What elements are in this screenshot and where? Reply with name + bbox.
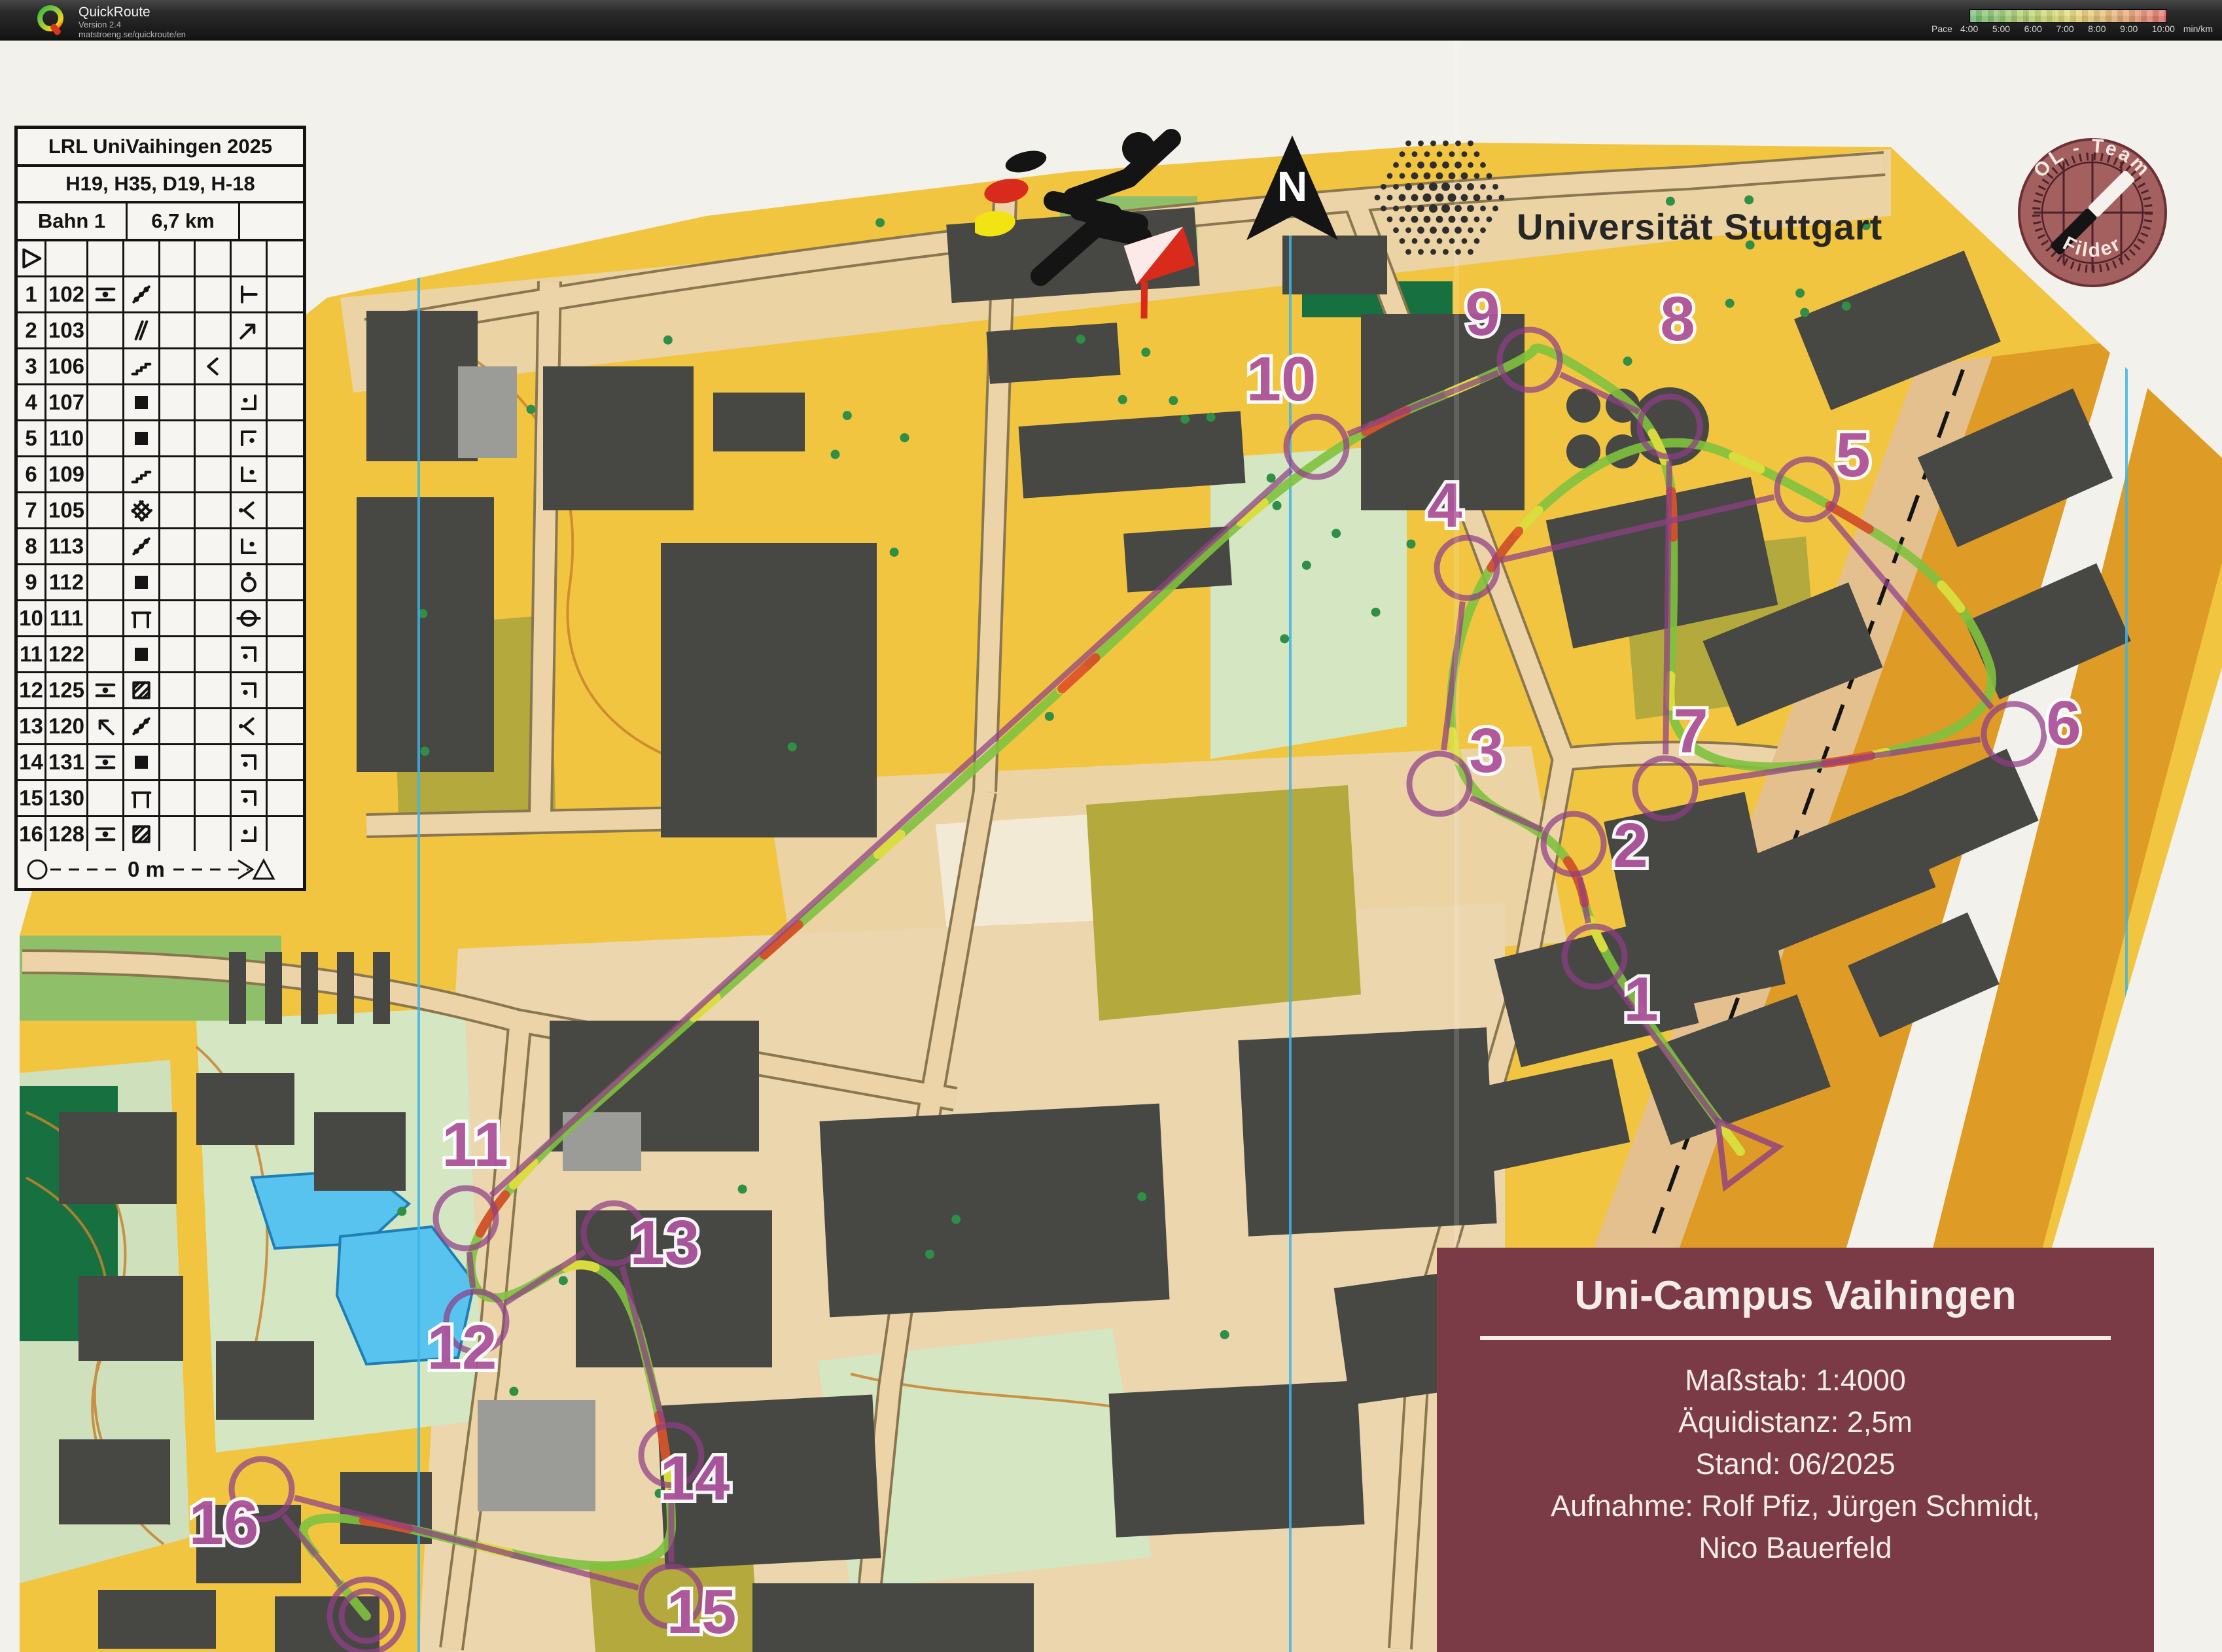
control-row: 11122 [18, 637, 303, 673]
symbol-cell [160, 673, 196, 707]
map-metadata: Maßstab: 1:4000Äquidistanz: 2,5mStand: 0… [1551, 1360, 2040, 1568]
control-row: 6109 [18, 457, 303, 493]
app-url: matstroeng.se/quickroute/en [79, 30, 186, 40]
map-control-number: 8 [1660, 284, 1695, 354]
symbol-cell [232, 421, 268, 455]
building-icon [128, 389, 154, 415]
control-number-cell: 10 [18, 601, 46, 635]
map-metadata-line: Maßstab: 1:4000 [1551, 1360, 2040, 1401]
quickroute-q-icon [34, 3, 68, 38]
map-control-number: 2 [1613, 811, 1648, 881]
symbol-cell [232, 673, 268, 707]
symbol-cell [124, 421, 160, 455]
grid-icon [128, 497, 154, 523]
symbol-cell [160, 313, 196, 347]
control-code-cell: 110 [46, 421, 88, 455]
course-length: 6,7 km [128, 203, 240, 239]
symbol-cell [196, 241, 232, 275]
control-code-cell: 120 [46, 709, 88, 743]
symbol-cell [88, 493, 124, 527]
control-code-cell: 128 [46, 817, 88, 851]
control-row: 12125 [18, 673, 303, 709]
symbol-cell [268, 385, 304, 419]
symbol-cell [88, 313, 124, 347]
symbol-cell [124, 781, 160, 815]
club-logo-compass: OL - Team Filder [2015, 135, 2170, 290]
symbol-cell [160, 781, 196, 815]
control-row: 13120 [18, 709, 303, 745]
control-code-cell: 125 [46, 673, 88, 707]
symbol-cell [232, 565, 268, 599]
symbol-cell [232, 745, 268, 779]
pace-tick-label: 4:00 [1960, 24, 1978, 34]
map-info-box: Uni-Campus Vaihingen Maßstab: 1:4000Äqui… [1437, 1248, 2154, 1652]
symbol-cell [160, 601, 196, 635]
building-icon [128, 749, 154, 775]
pace-label: Pace [1931, 24, 1952, 34]
circle-cross-icon [236, 605, 262, 631]
symbol-cell [124, 637, 160, 671]
dots-diag-icon [128, 533, 154, 559]
corner-dot-tl-icon [236, 425, 262, 451]
symbol-cell [196, 457, 232, 491]
corner-dot-br-icon [236, 389, 262, 415]
symbol-cell [232, 817, 268, 851]
quickroute-window: QuickRoute Version 2.4 matstroeng.se/qui… [0, 0, 2222, 1652]
control-number-cell: 12 [18, 673, 46, 707]
symbol-cell [196, 673, 232, 707]
finish-arrow-icon [170, 855, 281, 884]
symbol-cell [196, 385, 232, 419]
symbol-cell [124, 817, 160, 851]
symbol-cell [88, 457, 124, 491]
control-number-cell: 6 [18, 457, 46, 491]
symbol-cell [160, 493, 196, 527]
symbol-cell [232, 493, 268, 527]
corner-dot-tr-icon [236, 677, 262, 703]
map-title: Uni-Campus Vaihingen [1574, 1273, 2016, 1319]
symbol-cell [196, 529, 232, 563]
control-row: 1102 [18, 277, 303, 313]
map-control-number: 1 [1623, 964, 1658, 1034]
symbol-cell [268, 601, 304, 635]
symbol-cell [124, 241, 160, 275]
symbol-cell [160, 421, 196, 455]
symbol-cell [124, 277, 160, 311]
control-code-cell: 109 [46, 457, 88, 491]
symbol-cell [232, 709, 268, 743]
pace-gradient-bar [1969, 9, 2167, 23]
pace-tick-label: 8:00 [2088, 24, 2106, 34]
symbol-cell [88, 709, 124, 743]
map-control-number: 7 [1673, 696, 1708, 766]
symbol-cell [88, 385, 124, 419]
map-control-number: 16 [189, 1488, 259, 1558]
symbol-cell [268, 565, 304, 599]
map-control-number: 3 [1469, 716, 1504, 786]
control-code-cell: 103 [46, 313, 88, 347]
control-rows: 1102210331064107511061097105811391121011… [18, 241, 303, 851]
symbol-cell [232, 637, 268, 671]
control-code-cell: 107 [46, 385, 88, 419]
corner-dot-tr-icon [236, 749, 262, 775]
symbol-cell [268, 781, 304, 815]
symbol-cell [160, 385, 196, 419]
control-code-cell: 131 [46, 745, 88, 779]
symbol-cell [160, 745, 196, 779]
arrow-ne-icon [236, 317, 262, 343]
dot-circle-icon [236, 569, 262, 595]
symbol-cell [124, 313, 160, 347]
scale-distance: 0 m [128, 857, 165, 882]
control-row: 9112 [18, 565, 303, 601]
building-icon [128, 425, 154, 451]
pace-tick-label: 6:00 [2024, 24, 2042, 34]
control-code-cell: 130 [46, 781, 88, 815]
control-row: 2103 [18, 313, 303, 349]
symbol-cell [268, 349, 304, 383]
symbol-cell [124, 493, 160, 527]
control-row [18, 241, 303, 277]
control-number-cell: 5 [18, 421, 46, 455]
control-code-cell [46, 241, 88, 275]
symbol-cell [124, 601, 160, 635]
control-row: 5110 [18, 421, 303, 457]
start-icon [18, 245, 44, 272]
symbol-cell [160, 241, 196, 275]
symbol-cell [160, 817, 196, 851]
pace-legend: Pace 4:005:006:007:008:009:0010:00 min/k… [1931, 4, 2213, 38]
symbol-cell [88, 745, 124, 779]
pace-tick-labels: 4:005:006:007:008:009:0010:00 [1960, 24, 2175, 34]
map-control-number: 5 [1835, 420, 1870, 490]
event-title: LRL UniVaihingen 2025 [18, 129, 303, 167]
symbol-cell [124, 529, 160, 563]
pace-unit: min/km [2183, 24, 2213, 34]
hatch-icon [128, 821, 154, 847]
symbol-cell [88, 277, 124, 311]
map-control-number: 15 [667, 1577, 737, 1647]
map-control-number: 12 [427, 1312, 497, 1382]
control-number-cell: 7 [18, 493, 46, 527]
control-row: 14131 [18, 745, 303, 781]
control-row: 7105 [18, 493, 303, 529]
angle-dot-icon [236, 713, 262, 739]
symbol-cell [160, 637, 196, 671]
symbol-cell [88, 421, 124, 455]
control-code-cell: 105 [46, 493, 88, 527]
symbol-cell [268, 457, 304, 491]
symbol-cell [232, 385, 268, 419]
control-number-cell: 1 [18, 277, 46, 311]
symbol-cell [124, 385, 160, 419]
dots-diag-icon [128, 281, 154, 308]
symbol-cell [88, 529, 124, 563]
symbol-cell [196, 565, 232, 599]
north-arrow-icon: N [1240, 132, 1345, 250]
control-code-cell: 111 [46, 601, 88, 635]
class-list: H19, H35, D19, H-18 [18, 167, 303, 203]
canopy-icon [128, 605, 154, 631]
control-number-cell: 8 [18, 529, 46, 563]
control-row: 3106 [18, 349, 303, 385]
control-number-cell: 4 [18, 385, 46, 419]
symbol-cell [196, 781, 232, 815]
symbol-cell [268, 241, 304, 275]
corner-dot-bl-icon [236, 461, 262, 487]
junction-icon [92, 749, 118, 775]
symbol-cell [196, 313, 232, 347]
symbol-cell [268, 817, 304, 851]
control-number-cell: 3 [18, 349, 46, 383]
symbol-cell [268, 709, 304, 743]
event-runner-logo [975, 103, 1210, 319]
symbol-cell [160, 277, 196, 311]
symbol-cell [124, 673, 160, 707]
corner-dot-br-icon [236, 821, 262, 847]
symbol-cell [88, 817, 124, 851]
pace-tick-label: 7:00 [2056, 24, 2073, 34]
corner-dot-tr-icon [236, 785, 262, 811]
building-icon [128, 569, 154, 595]
angle-dot-icon [236, 497, 262, 523]
symbol-cell [196, 349, 232, 383]
junction-icon [92, 281, 118, 308]
symbol-cell [196, 709, 232, 743]
symbol-cell [232, 457, 268, 491]
university-logo-icon [1367, 122, 1511, 273]
control-number-cell: 11 [18, 637, 46, 671]
course-extra [240, 203, 303, 239]
symbol-cell [196, 817, 232, 851]
map-metadata-line: Äquidistanz: 2,5m [1551, 1401, 2040, 1443]
arrow-nw-icon [92, 713, 118, 739]
map-control-number: 9 [1465, 279, 1500, 349]
start-dash-icon [24, 855, 122, 884]
symbol-cell [196, 493, 232, 527]
symbol-cell [124, 457, 160, 491]
map-metadata-line: Stand: 06/2025 [1551, 1443, 2040, 1485]
symbol-cell [232, 277, 268, 311]
symbol-cell [160, 709, 196, 743]
control-row: 16128 [18, 817, 303, 851]
map-metadata-line: Aufnahme: Rolf Pfiz, Jürgen Schmidt, [1551, 1485, 2040, 1527]
symbol-cell [232, 529, 268, 563]
symbol-cell [232, 349, 268, 383]
pace-tick-label: 10:00 [2152, 24, 2175, 34]
angle-left-icon [200, 353, 226, 379]
symbol-cell [88, 565, 124, 599]
control-code-cell: 102 [46, 277, 88, 311]
info-divider [1480, 1336, 2111, 1340]
symbol-cell [196, 601, 232, 635]
symbol-cell [160, 529, 196, 563]
stairs-icon [128, 353, 154, 379]
canopy-icon [128, 785, 154, 811]
map-control-number: 10 [1246, 344, 1316, 414]
university-name: Universität Stuttgart [1517, 205, 1882, 248]
junction-icon [92, 677, 118, 703]
control-number-cell: 15 [18, 781, 46, 815]
finish-scale-row: 0 m [18, 851, 303, 888]
symbol-cell [268, 529, 304, 563]
pace-tick-label: 9:00 [2120, 24, 2138, 34]
building-icon [128, 641, 154, 667]
symbol-cell [232, 601, 268, 635]
symbol-cell [88, 349, 124, 383]
control-number-cell: 9 [18, 565, 46, 599]
control-number-cell: 2 [18, 313, 46, 347]
control-row: 8113 [18, 529, 303, 565]
map-control-number: 6 [2046, 688, 2081, 758]
control-code-cell: 122 [46, 637, 88, 671]
corner-dot-tr-icon [236, 641, 262, 667]
control-number-cell: 14 [18, 745, 46, 779]
junction-icon [92, 821, 118, 847]
map-control-number: 14 [660, 1443, 730, 1513]
double-diag-icon [128, 317, 154, 343]
symbol-cell [124, 349, 160, 383]
t-left-icon [236, 281, 262, 308]
control-code-cell: 106 [46, 349, 88, 383]
control-code-cell: 112 [46, 565, 88, 599]
symbol-cell [196, 277, 232, 311]
symbol-cell [88, 241, 124, 275]
symbol-cell [232, 313, 268, 347]
symbol-cell [268, 493, 304, 527]
symbol-cell [88, 781, 124, 815]
symbol-cell [88, 601, 124, 635]
symbol-cell [88, 637, 124, 671]
symbol-cell [196, 745, 232, 779]
symbol-cell [268, 745, 304, 779]
symbol-cell [268, 313, 304, 347]
app-title: QuickRoute [79, 5, 186, 20]
control-row: 15130 [18, 781, 303, 817]
map-canvas[interactable]: 12345678910111213141516 [0, 41, 2222, 1652]
control-description-sheet: LRL UniVaihingen 2025 H19, H35, D19, H-1… [14, 126, 306, 891]
symbol-cell [232, 241, 268, 275]
map-control-number: 11 [442, 1110, 508, 1180]
hatch-icon [128, 677, 154, 703]
app-header: QuickRoute Version 2.4 matstroeng.se/qui… [0, 0, 2222, 41]
symbol-cell [88, 673, 124, 707]
symbol-cell [124, 565, 160, 599]
symbol-cell [268, 277, 304, 311]
map-control-number: 13 [630, 1208, 700, 1278]
symbol-cell [196, 637, 232, 671]
symbol-cell [124, 709, 160, 743]
course-name: Bahn 1 [18, 203, 128, 239]
svg-text:N: N [1277, 163, 1307, 210]
control-row: 10111 [18, 601, 303, 637]
symbol-cell [232, 781, 268, 815]
symbol-cell [196, 421, 232, 455]
map-metadata-line: Nico Bauerfeld [1551, 1527, 2040, 1569]
pace-tick-label: 5:00 [1992, 24, 2010, 34]
control-number-cell [18, 241, 46, 275]
control-number-cell: 13 [18, 709, 46, 743]
symbol-cell [268, 637, 304, 671]
symbol-cell [160, 565, 196, 599]
corner-dot-bl-icon [236, 533, 262, 559]
control-number-cell: 16 [18, 817, 46, 851]
symbol-cell [268, 673, 304, 707]
stairs-icon [128, 461, 154, 487]
symbol-cell [160, 457, 196, 491]
app-version: Version 2.4 [79, 20, 186, 30]
symbol-cell [268, 421, 304, 455]
app-brand: QuickRoute Version 2.4 matstroeng.se/qui… [34, 3, 186, 40]
dots-diag-icon [128, 713, 154, 739]
control-code-cell: 113 [46, 529, 88, 563]
symbol-cell [160, 349, 196, 383]
control-row: 4107 [18, 385, 303, 421]
symbol-cell [124, 745, 160, 779]
